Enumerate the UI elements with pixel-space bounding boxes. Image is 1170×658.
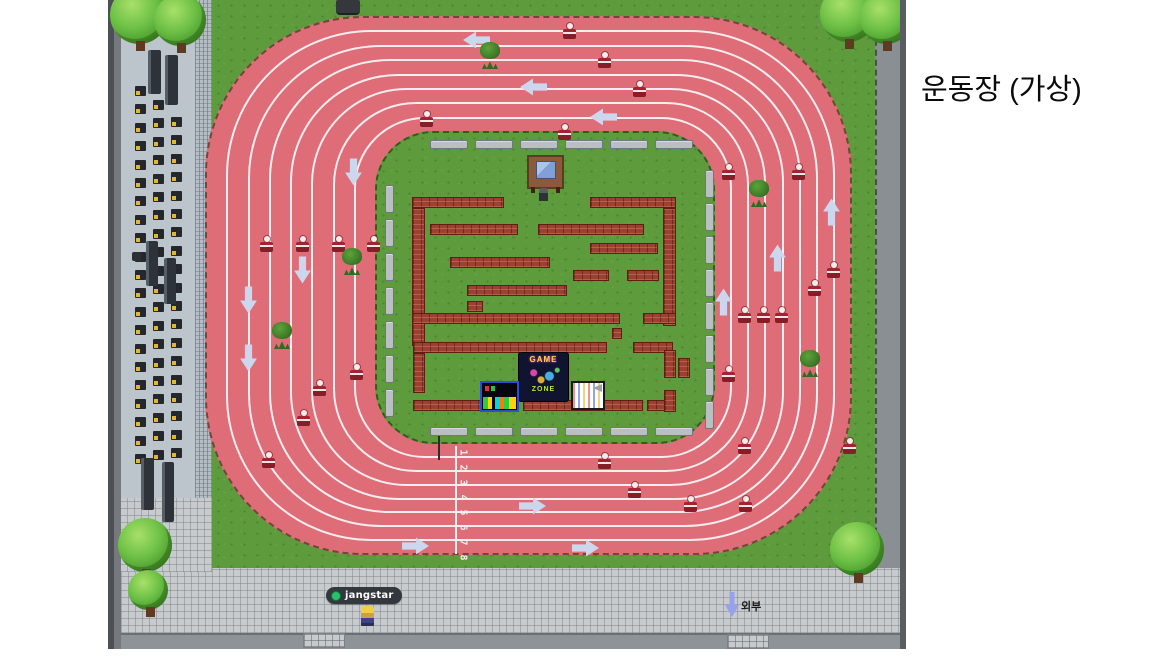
left-wall: [108, 0, 121, 649]
online-status-dot: [331, 591, 341, 601]
player-name-tag: jangstar: [326, 587, 402, 604]
portal-gate[interactable]: [303, 633, 345, 648]
lane-number: 6: [458, 524, 469, 530]
tetris-board: [480, 381, 519, 412]
right-pavement-strip: [875, 0, 900, 633]
lane-number: 2: [458, 464, 469, 470]
lane-number: 1: [458, 449, 469, 455]
lane-number: 4: [458, 494, 469, 500]
plant-object: [132, 252, 141, 261]
bleacher-building: [120, 0, 195, 528]
map-right-edge: [900, 0, 906, 649]
portal-gate[interactable]: [727, 634, 769, 649]
lane-number: 3: [458, 479, 469, 485]
game-world-viewport[interactable]: GAME ZONE jangstar 외부 12345678: [108, 0, 906, 649]
left-pavement: [120, 498, 212, 572]
game-zone-sign-art: [519, 364, 568, 386]
bottom-pavement: [121, 568, 900, 633]
screen-board: [527, 155, 564, 189]
game-zone-sign: GAME ZONE: [518, 352, 569, 402]
bench-object: [336, 0, 360, 15]
screenshot-stage: GAME ZONE jangstar 외부 12345678 운동장 (가상): [0, 0, 1170, 658]
bottom-wall: [108, 633, 906, 649]
dot-game-board: [571, 381, 605, 410]
player-avatar[interactable]: [361, 606, 374, 626]
game-zone-sign-bottom-text: ZONE: [519, 386, 568, 393]
lane-number: 8: [458, 554, 469, 560]
lane-number: 7: [458, 539, 469, 545]
npc-figure: [539, 188, 548, 201]
exit-portal-label: 외부: [741, 598, 761, 614]
hurdle: [843, 442, 856, 454]
map-title: 운동장 (가상): [921, 66, 1082, 108]
player-name: jangstar: [345, 590, 393, 601]
lane-number: 5: [458, 509, 469, 515]
relay-mark: [438, 430, 440, 460]
game-zone-sign-top-text: GAME: [519, 355, 568, 364]
tree: [820, 0, 876, 42]
